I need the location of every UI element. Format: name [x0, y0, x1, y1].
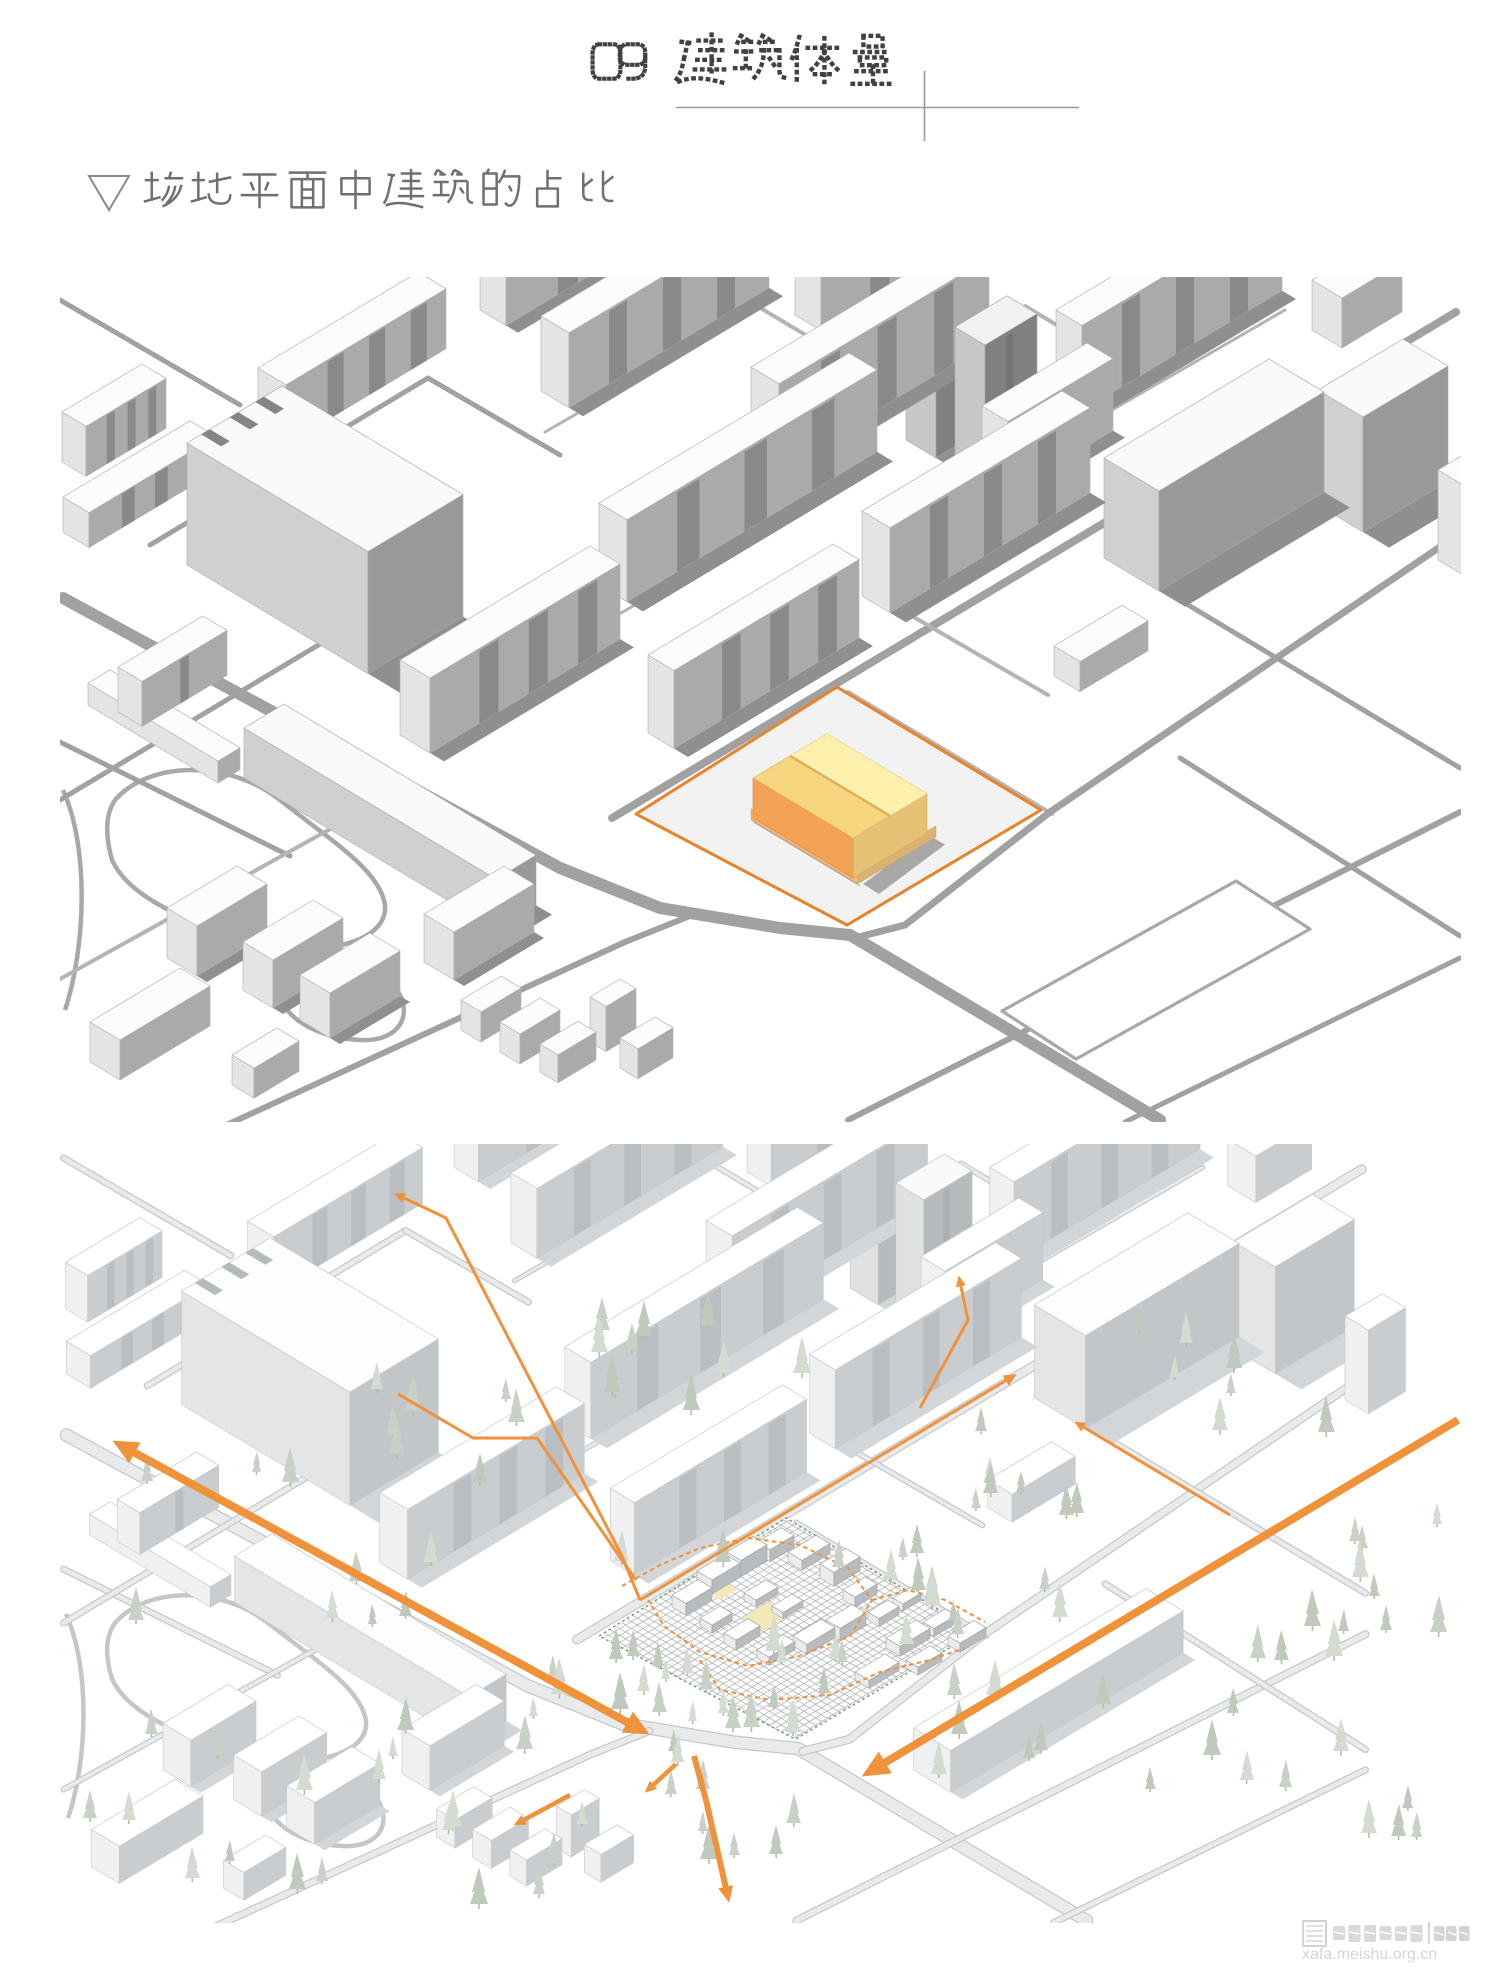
svg-text:xafa.meishu.org.cn: xafa.meishu.org.cn — [1302, 1946, 1437, 1963]
